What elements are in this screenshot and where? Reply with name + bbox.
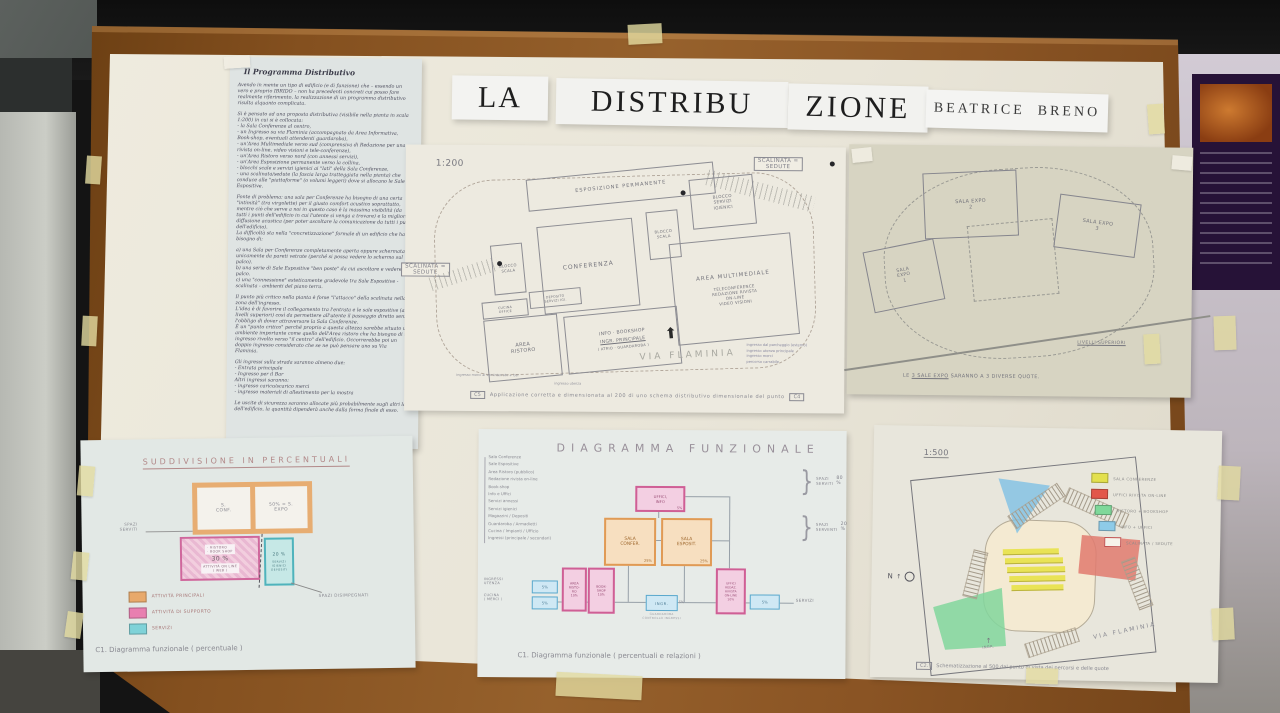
box-ingresso-merci: 5% xyxy=(532,596,558,609)
plan200-caption: C5 Applicazione corretta e dimensionata … xyxy=(470,391,804,401)
box-pct: 10% xyxy=(598,593,605,597)
mini-legend-item: percorso carrabile xyxy=(746,359,841,365)
cell-sala-expo: 50% = S. EXPO xyxy=(255,486,308,529)
plan500-legend-row: SALA CONFERENZE xyxy=(1091,473,1156,484)
room-servizi-igienici: BLOCCO SERVIZI IGIENICI xyxy=(688,174,757,230)
title-strip-la: LA xyxy=(452,75,549,120)
room-area-ristoro: AREA RISTORO xyxy=(483,313,563,382)
percent-frame: S. CONF. 50% = S. EXPO xyxy=(192,481,313,535)
legend-label: SALA CONFERENZE xyxy=(1113,476,1156,482)
masking-tape xyxy=(1217,465,1241,500)
legend-label: INFO + UFFICI xyxy=(1120,524,1152,530)
caption-tag-c5: C5 xyxy=(470,391,485,399)
levels-caption-pre: LE xyxy=(903,373,910,379)
masking-tape xyxy=(77,465,96,496)
percent-title: SUDDIVISIONE IN PERCENTUALI xyxy=(143,455,350,470)
levels-note: LIVELLI SUPERIORI xyxy=(1077,341,1126,347)
conference-seating-rows xyxy=(1003,548,1066,591)
seat-row xyxy=(1007,566,1065,573)
legend-swatch-ristoro xyxy=(1095,505,1112,515)
caption-tag-c2: C2. xyxy=(916,662,932,670)
photo-of-presentation-board: LA DISTRIBU ZIONE BEATRICE BRENO Il Prog… xyxy=(0,0,1280,713)
program-paragraph: Gli ingressi sulla strada saranno almeno… xyxy=(234,360,410,398)
author-strip: BEATRICE BRENO xyxy=(926,89,1109,132)
author-name: BEATRICE BRENO xyxy=(934,101,1101,122)
plan-1-200-sheet: 1:200 SCALINATA = SEDUTE SCALINATA = SED… xyxy=(404,144,846,413)
program-paragraph: a) una Sala per Conferenze completamente… xyxy=(236,248,412,292)
white-wall-sliver xyxy=(0,112,76,657)
legend-swatch-servizi xyxy=(129,623,147,634)
program-paragraph: Le uscite di sicurezza saranno allocate … xyxy=(234,401,410,415)
legend-swatch-conferenze xyxy=(1091,473,1108,483)
percent-caption: C1. Diagramma funzionale ( percentuale ) xyxy=(95,644,242,654)
plan200-scale: 1:200 xyxy=(436,159,464,169)
support-pct: 30 % xyxy=(212,555,229,562)
connector-line xyxy=(729,496,730,568)
plan-pin-dot xyxy=(497,261,502,266)
levels-caption-post: SARANNO A 3 DIVERSE QUOTE. xyxy=(951,373,1040,380)
box-ingr-centrale: INGR. xyxy=(646,595,678,611)
north-label: N xyxy=(888,572,894,580)
brace-glyph: } xyxy=(800,464,813,498)
legend-label: UFFICI RIVISTA ON-LINE xyxy=(1113,492,1167,498)
brace-pct: 80 % xyxy=(836,476,846,486)
box-uffici-info: UFFICI, INFO 5% xyxy=(635,486,685,512)
plan500-entrance: ↑ INGR. xyxy=(982,637,994,649)
sala-expo-3: SALA EXPO 3 xyxy=(1053,194,1141,258)
plan-pin-dot xyxy=(830,161,835,166)
legend-label: ATTIVITÀ DI SUPPORTO xyxy=(152,610,211,616)
box-pct: 5% xyxy=(677,506,682,510)
title-word-la: LA xyxy=(478,81,522,116)
room-area-multimediale: AREA MULTIMEDIALE TELECONFERENCE REDAZIO… xyxy=(669,232,800,345)
ingr-pct: 5% xyxy=(679,600,684,604)
box-servizi-out: 5% xyxy=(750,594,780,609)
north-arrow-icon: ↑ xyxy=(896,573,901,580)
seat-row xyxy=(1005,557,1063,564)
note-merci: ingresso merci al seminterrato + bar xyxy=(456,373,540,378)
masking-tape xyxy=(64,611,83,639)
brace-pct: 20 % xyxy=(841,522,848,532)
serviti-pointer-line xyxy=(146,531,193,533)
room-esposizione: ESPOSIZIONE PERMANENTE xyxy=(526,162,716,212)
box-uffici-redazione: UFFICI REDAZ. RIVISTA ON-LINE 10% xyxy=(716,568,746,614)
masking-tape xyxy=(627,23,662,45)
legend-swatch-supporto xyxy=(129,607,147,618)
brace-spazi-serventi: } SPAZI SERVENTI 20 % xyxy=(800,515,847,539)
masking-tape xyxy=(1026,667,1059,684)
masking-tape xyxy=(1147,103,1165,134)
box-bookshop: BOOK- SHOP 10% xyxy=(588,568,615,614)
legend-label: ATTIVITÀ PRINCIPALI xyxy=(152,594,205,600)
functional-diagram-sheet: DIAGRAMMA FUNZIONALE Sala Conferenze Sal… xyxy=(477,429,846,679)
seat-row xyxy=(1011,584,1063,591)
program-heading: Il Programma Distributivo xyxy=(244,67,414,78)
legend-label: SCALINATA / SEDUTE xyxy=(1126,540,1173,546)
brace-spazi-serviti: } SPAZI SERVITI 80 % xyxy=(800,469,846,493)
brace-glyph: } xyxy=(800,510,813,544)
percent-legend-row: SERVIZI xyxy=(129,623,172,635)
brace-label: SPAZI SERVENTI xyxy=(816,522,838,532)
multimediale-title: AREA MULTIMEDIALE xyxy=(696,269,770,283)
masking-tape xyxy=(71,551,90,581)
levels-tracing-sheet: SALA EXPO 2 SALA EXPO 3 SALA EXPO 1 LIVE… xyxy=(847,144,1194,398)
masking-tape xyxy=(555,672,642,700)
neighbour-poster-textlines xyxy=(1200,152,1272,272)
box-ingresso-utenza: 5% xyxy=(532,580,558,593)
cell-sala-conf: S. CONF. xyxy=(197,487,250,530)
masking-tape xyxy=(1211,607,1235,640)
functional-list-item: Ingressi (principale / secondari) xyxy=(488,535,620,543)
box-pct: 25% xyxy=(700,559,708,563)
percent-support-box: · RISTORO · BOOK SHOP 30 % ATTIVITÀ ON L… xyxy=(180,536,261,581)
levels-caption: LE 3 SALE EXPO SARANNO A 3 DIVERSE QUOTE… xyxy=(903,373,1040,380)
connector-line xyxy=(628,562,629,602)
legend-label: SERVIZI xyxy=(152,626,172,631)
levels-caption-mid: 3 SALE EXPO xyxy=(912,373,949,379)
caption-tag-c4: C4 xyxy=(790,393,805,401)
support-sub: ATTIVITÀ ON LINE ( WEB ) xyxy=(201,563,239,574)
functional-caption: C1. Diagramma funzionale ( percentuali e… xyxy=(517,651,700,660)
program-paragraph: Avendo in mente un tipo di edificio (e d… xyxy=(238,83,414,109)
masking-tape xyxy=(224,55,251,69)
title-strip-zione: ZIONE xyxy=(787,83,928,132)
box-pct: 10% xyxy=(727,597,734,601)
legend-label: RISTORO + BOOKSHOP xyxy=(1117,508,1169,514)
title-strip-distribu: DISTRIBU xyxy=(556,78,789,128)
plan200-mini-legend: ingresso dal parcheggio (esterno) ingres… xyxy=(746,343,841,366)
title-word-distribu: DISTRIBU xyxy=(591,85,754,122)
box-pct: 25% xyxy=(644,559,652,563)
services-pct: 20 % xyxy=(272,552,285,557)
box-sala-espositive: SALA ESPOSIT. 25% xyxy=(661,518,712,566)
connector-line xyxy=(681,496,729,497)
stair-band xyxy=(1121,557,1154,611)
services-sub: SERVIZI IGIENICI DEPOSITI xyxy=(271,559,287,571)
label-servizi: SERVIZI xyxy=(796,598,814,603)
box-pct: 10% xyxy=(571,594,578,598)
seat-row xyxy=(1009,575,1065,582)
program-paragraphs: Avendo in mente un tipo di edificio (e d… xyxy=(234,83,413,415)
program-text-sheet: Il Programma Distributivo Avendo in ment… xyxy=(226,57,422,449)
title-word-zione: ZIONE xyxy=(805,90,911,126)
box-sala-conferenze: SALA CONFER. 25% xyxy=(604,518,656,566)
brace-label: SPAZI SERVITI xyxy=(816,476,833,486)
neighbour-poster-photo xyxy=(1200,84,1272,142)
list-bracket-line xyxy=(484,457,485,543)
ingr-note: GUARDAROBA CONTROLLO INGRESSI xyxy=(640,612,684,620)
percentuali-sheet: SUDDIVISIONE IN PERCENTUALI S. CONF. 50%… xyxy=(80,436,415,673)
program-paragraph: Fonte di problema: una sala per Conferen… xyxy=(236,195,412,245)
seat-row xyxy=(1003,548,1059,555)
legend-swatch-principali xyxy=(129,591,147,602)
masking-tape xyxy=(1213,316,1236,351)
percent-legend-row: ATTIVITÀ PRINCIPALI xyxy=(129,591,205,603)
percent-label-serviti: SPAZI SERVITI xyxy=(120,522,138,532)
label-ingressi-utenza: INGRESSI UTENZA xyxy=(484,577,528,585)
multimediale-sub: TELECONFERENCE REDAZIONE RIVISTA ON-LINE… xyxy=(711,283,758,307)
masking-tape xyxy=(81,316,98,347)
program-paragraph: Il punto più critico nella pianta è fors… xyxy=(235,295,412,357)
percent-services-box: 20 % SERVIZI IGIENICI DEPOSITI xyxy=(264,537,295,585)
legend-swatch-info xyxy=(1098,521,1115,531)
entrance-label: INGR. xyxy=(982,644,994,649)
plan500-legend-row: RISTORO + BOOKSHOP xyxy=(1095,505,1169,516)
functional-list: Sala Conferenze Sale Espositive Area Ris… xyxy=(488,453,620,543)
entrance-arrow-icon: ⬆ xyxy=(664,324,678,343)
label-cucina-merci: CUCINA ( MERCI ) xyxy=(484,593,528,601)
plan500-legend-row: UFFICI RIVISTA ON-LINE xyxy=(1091,489,1167,500)
disimpegnati-pointer-line xyxy=(291,582,322,592)
masking-tape xyxy=(85,156,102,185)
plan-1-500-sheet: 1:500 SALA CONFERENZE UFF xyxy=(870,425,1222,683)
note-utenza: ingresso utenza xyxy=(554,382,581,386)
plan500-scale: 1:500 xyxy=(924,448,949,458)
plan500-legend-row: INFO + UFFICI xyxy=(1098,521,1152,532)
dark-wall-strip xyxy=(0,58,72,114)
support-items: · RISTORO · BOOK SHOP xyxy=(205,544,235,554)
masking-tape xyxy=(1143,334,1161,365)
masking-tape xyxy=(1171,155,1192,171)
compass-icon xyxy=(904,572,914,582)
caption-text: Applicazione corretta e dimensionata al … xyxy=(490,392,785,400)
room-blocco-scala-1: BLOCCO SCALA xyxy=(490,243,527,296)
program-paragraph: Si è pensato ad una proposta distributiv… xyxy=(237,112,414,192)
legend-swatch-rivista xyxy=(1091,489,1108,499)
concrete-wall-corner xyxy=(0,0,97,58)
box-area-ristoro: AREA RISTO- RO 10% xyxy=(562,567,587,611)
legend-swatch-scalinata xyxy=(1104,537,1121,547)
percent-legend-row: ATTIVITÀ DI SUPPORTO xyxy=(129,607,211,619)
percent-label-disimpegnati: SPAZI DISIMPEGNATI xyxy=(319,592,369,598)
north-indicator: N ↑ xyxy=(888,571,915,581)
masking-tape xyxy=(851,147,872,163)
connector-line xyxy=(684,562,685,602)
plan500-legend-row: SCALINATA / SEDUTE xyxy=(1104,537,1173,548)
sala-expo-2: SALA EXPO 2 xyxy=(922,170,1019,240)
plan-pin-dot xyxy=(681,190,686,195)
